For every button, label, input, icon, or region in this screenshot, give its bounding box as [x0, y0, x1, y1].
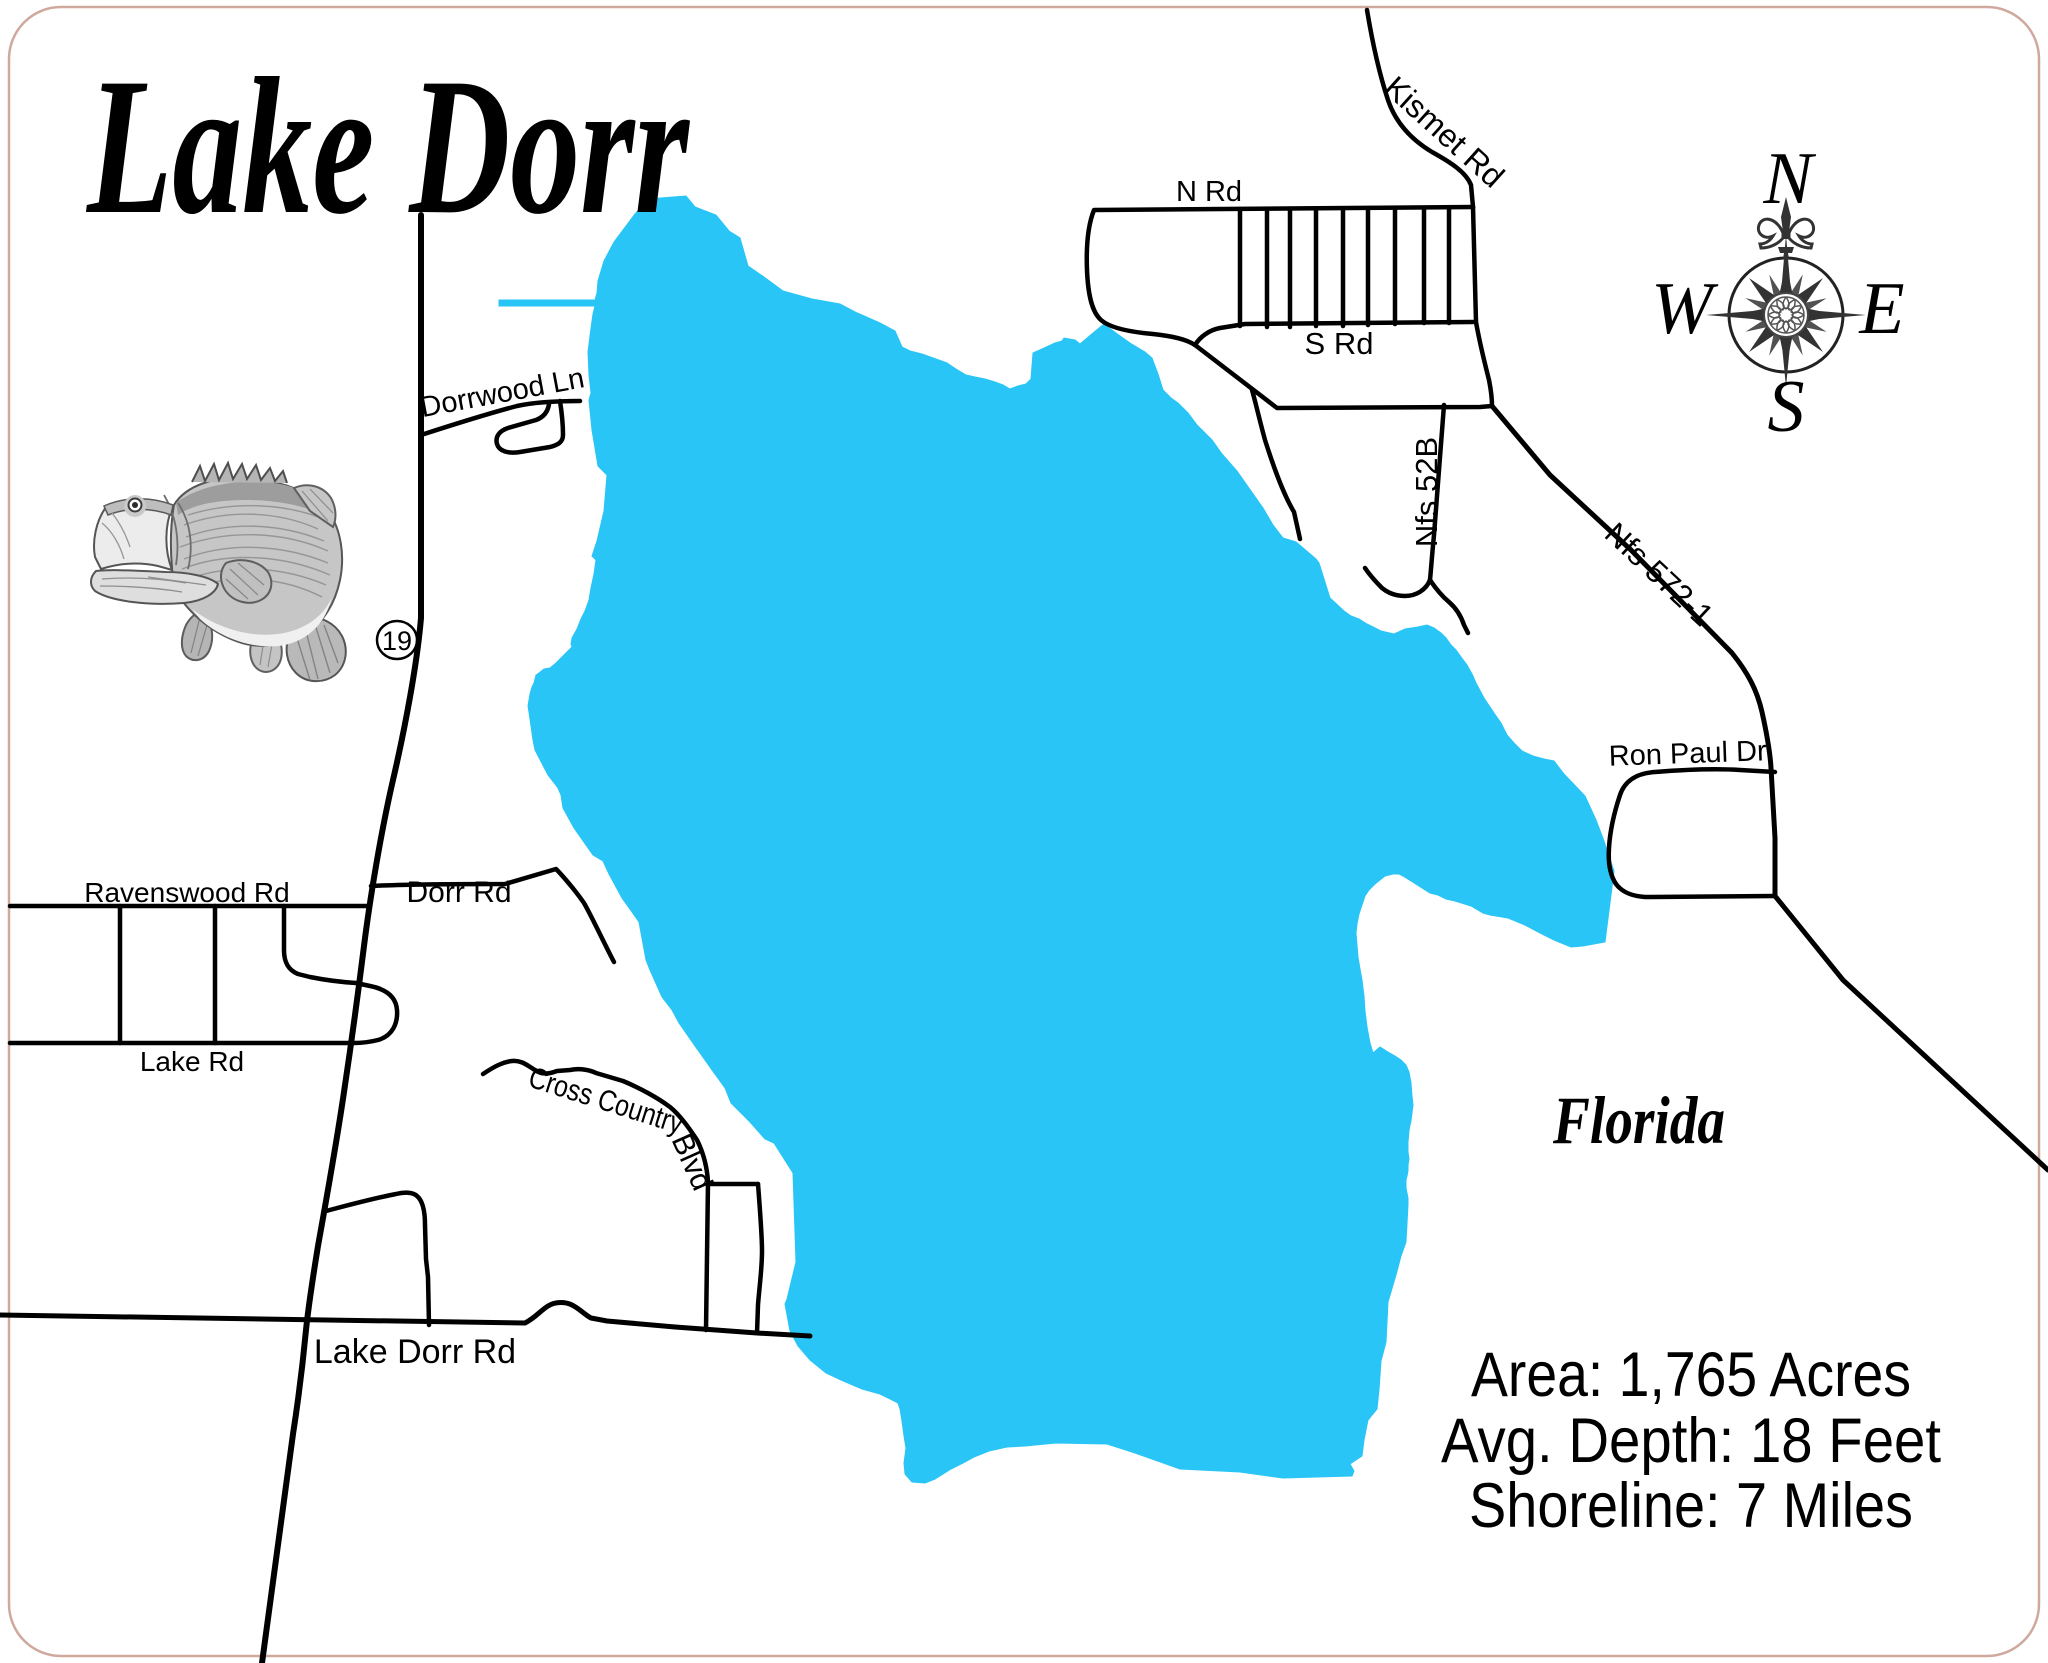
svg-text:S: S	[1768, 366, 1805, 448]
svg-text:19: 19	[382, 626, 412, 656]
svg-text:W: W	[1651, 268, 1719, 350]
svg-text:S Rd: S Rd	[1305, 326, 1374, 361]
svg-text:Lake Dorr Rd: Lake Dorr Rd	[314, 1333, 516, 1371]
svg-text:N: N	[1762, 138, 1816, 220]
svg-text:Area: 1,765 Acres: Area: 1,765 Acres	[1471, 1340, 1911, 1410]
svg-text:Nfs 52B: Nfs 52B	[1409, 437, 1444, 547]
svg-text:Avg. Depth: 18 Feet: Avg. Depth: 18 Feet	[1441, 1406, 1941, 1476]
svg-text:Lake Dorr: Lake Dorr	[86, 38, 691, 255]
svg-text:Ravenswood Rd: Ravenswood Rd	[84, 877, 289, 908]
svg-text:Lake Rd: Lake Rd	[140, 1046, 244, 1077]
svg-text:N Rd: N Rd	[1176, 176, 1242, 208]
svg-text:E: E	[1858, 268, 1904, 350]
svg-text:Florida: Florida	[1552, 1082, 1725, 1158]
svg-text:Ron Paul Dr: Ron Paul Dr	[1608, 735, 1767, 773]
svg-text:Shoreline: 7 Miles: Shoreline: 7 Miles	[1469, 1471, 1913, 1541]
svg-text:Dorr Rd: Dorr Rd	[406, 876, 511, 909]
